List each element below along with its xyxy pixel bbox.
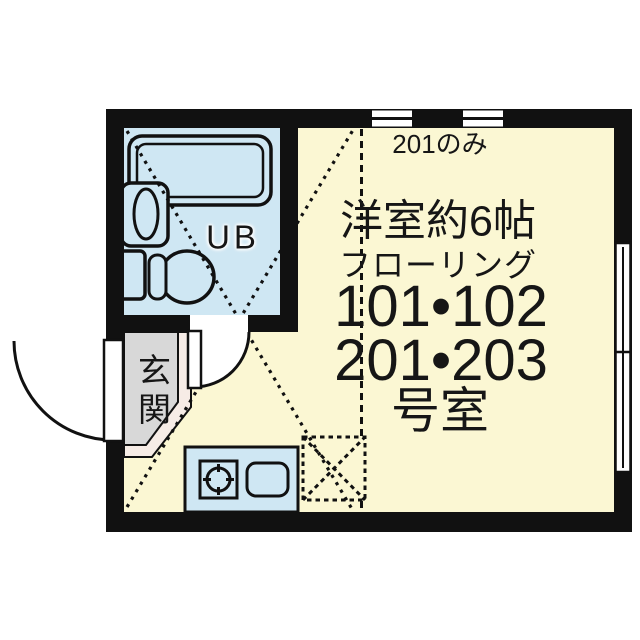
room-suffix-label: 号室 [391,388,489,437]
floorplan: 201のみ 洋室約6帖 フローリング 101•102 201•203 号室 UB… [0,0,640,640]
toilet [119,251,214,303]
kitchen-sink [247,463,288,496]
room-name-label: 洋室約6帖 [340,201,536,244]
wall-bottom [106,512,632,532]
entrance-door-leaf [104,340,123,441]
vanity-sink [121,183,168,246]
entrance-label: 玄関 [136,353,169,431]
window-note-label: 201のみ [392,131,487,157]
refrigerator-space [303,437,365,500]
window-right [616,243,631,472]
kitchen-counter [185,447,298,512]
wall-ub-east [280,109,298,332]
bath-door-opening [190,315,248,332]
room-numbers-line2: 201•203 [334,332,548,390]
entrance-door [14,340,123,441]
window-top-1 [372,111,412,127]
unit-bath-label: UB [206,221,260,254]
wall-top [106,109,632,128]
bath-door-leaf [188,331,201,388]
window-top-2 [463,111,503,127]
